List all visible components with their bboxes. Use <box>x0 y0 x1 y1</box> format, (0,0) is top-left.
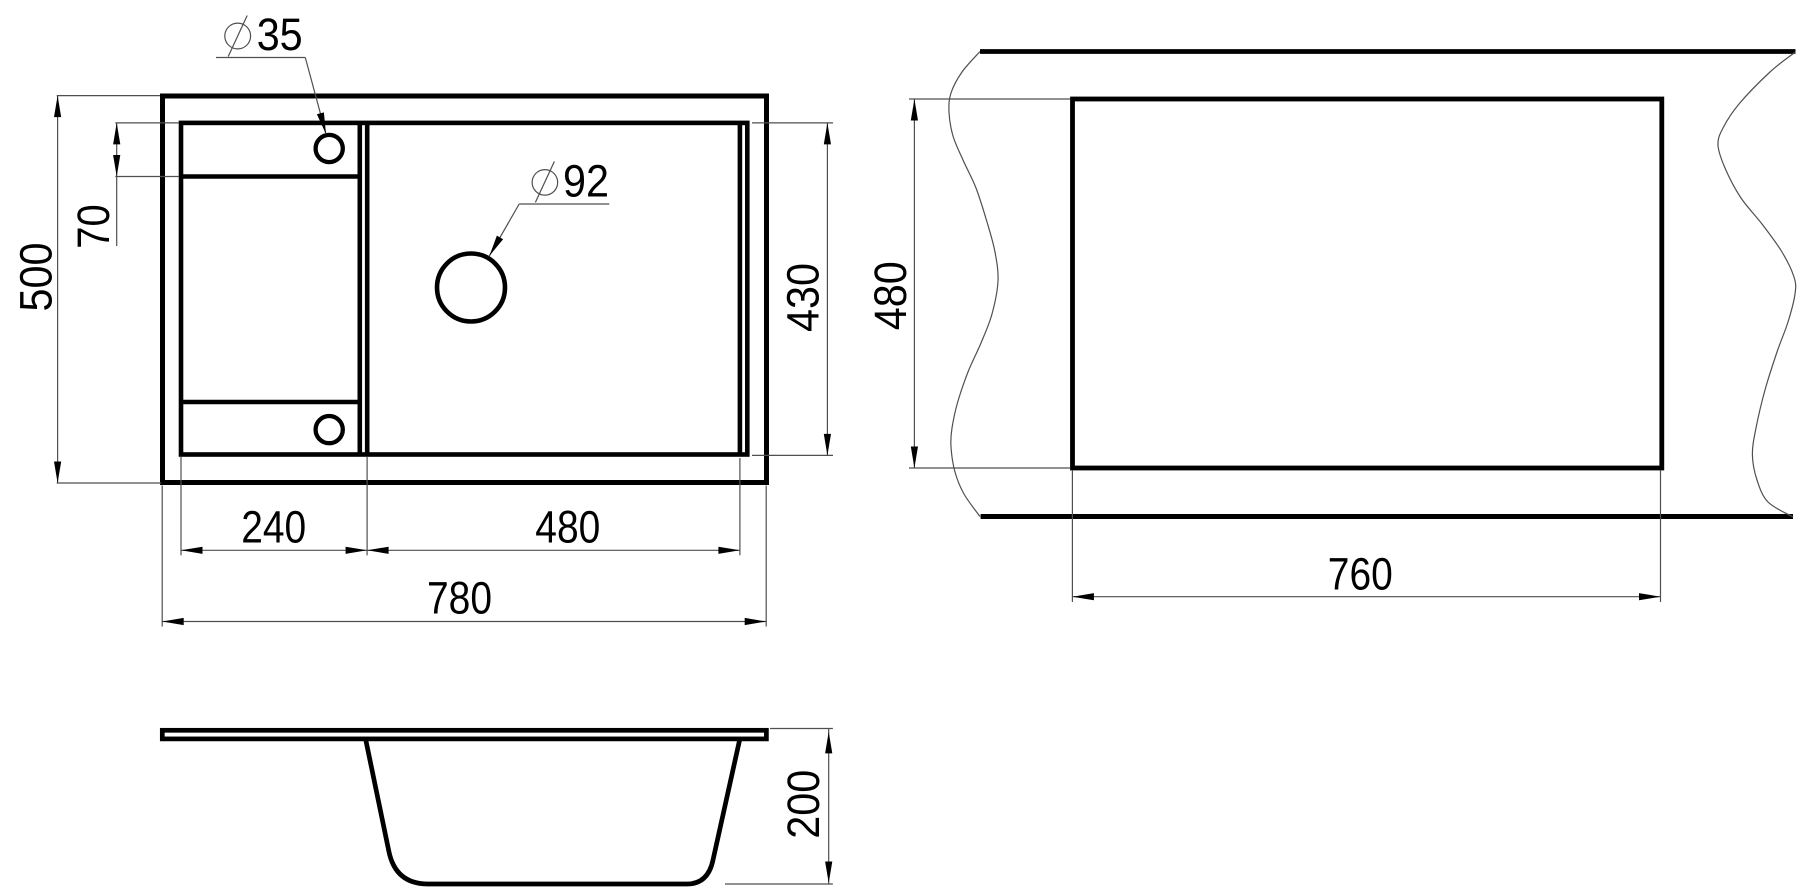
svg-text:500: 500 <box>11 243 62 312</box>
svg-text:760: 760 <box>1328 548 1393 599</box>
svg-text:70: 70 <box>68 204 119 249</box>
svg-text:35: 35 <box>257 9 303 60</box>
svg-text:480: 480 <box>865 261 916 330</box>
svg-text:240: 240 <box>241 502 306 553</box>
svg-text:430: 430 <box>778 263 829 332</box>
svg-text:92: 92 <box>563 156 609 207</box>
svg-text:780: 780 <box>427 573 492 624</box>
svg-text:480: 480 <box>535 502 600 553</box>
svg-text:200: 200 <box>778 770 829 839</box>
